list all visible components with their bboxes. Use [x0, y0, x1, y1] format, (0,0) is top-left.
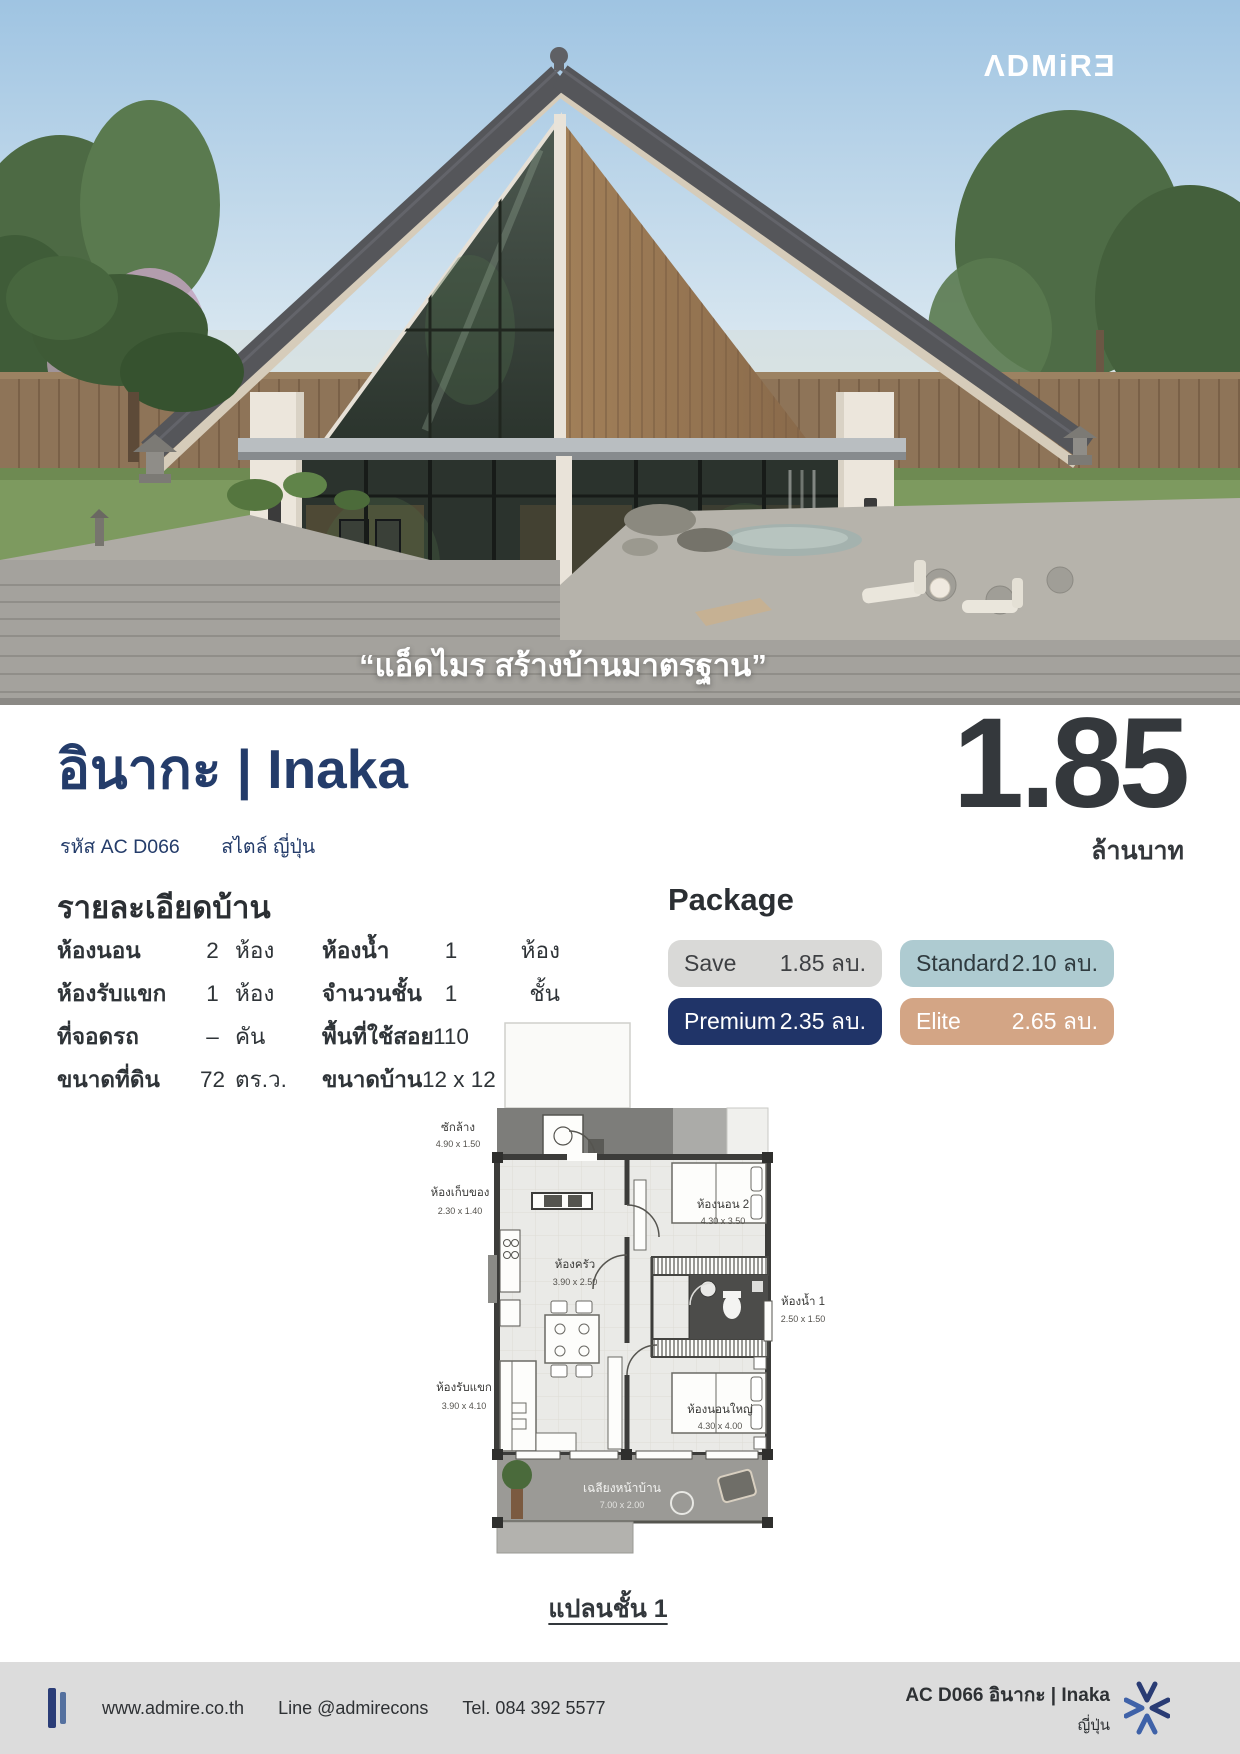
package-tile-value: 1.85 ลบ. — [780, 946, 866, 982]
house-illustration — [0, 0, 1240, 705]
model-title: อินากะ | Inaka — [57, 726, 408, 813]
package-tile-label: Save — [684, 950, 736, 977]
footer-line: Line @admirecons — [278, 1698, 428, 1719]
detail-unit: คัน — [235, 1019, 322, 1062]
floor-plan-drawing: ซักล้าง 4.90 x 1.50 ห้องเก็บของ 2.30 x 1… — [420, 1005, 830, 1575]
room-dims: 2.30 x 1.40 — [438, 1206, 483, 1216]
detail-unit: ห้อง — [480, 933, 560, 976]
brochure-page: ΛDMiRƎ “แอ็ดไมร สร้างบ้านมาตรฐาน” อินากะ… — [0, 0, 1240, 1754]
detail-label: ขนาดที่ดิน — [57, 1062, 190, 1105]
room-label: เฉลียงหน้าบ้าน — [583, 1481, 661, 1495]
model-code: รหัส AC D066 — [60, 836, 180, 858]
footer-tel: Tel. 084 392 5577 — [462, 1698, 605, 1719]
brand-logo: ΛDMiRƎ — [984, 48, 1184, 84]
room-dims: 7.00 x 2.00 — [600, 1500, 645, 1510]
model-style: สไตล์ ญี่ปุ่น — [221, 836, 315, 858]
detail-unit: ห้อง — [235, 976, 322, 1019]
room-label: ห้องนอนใหญ่ — [687, 1403, 753, 1416]
room-dims: 2.50 x 1.50 — [781, 1314, 826, 1324]
price-value: 1.85 — [953, 700, 1186, 828]
room-dims: 3.90 x 2.50 — [553, 1277, 598, 1287]
footer-contact: www.admire.co.th Line @admirecons Tel. 0… — [48, 1662, 606, 1754]
room-dims: 4.90 x 1.50 — [436, 1139, 481, 1149]
footer-model-code: AC D066 อินากะ | Inaka — [905, 1680, 1110, 1710]
detail-label: ห้องรับแขก — [57, 976, 190, 1019]
bed-2 — [672, 1163, 766, 1223]
awning — [238, 438, 906, 452]
room-label: ห้องนอน 2 — [697, 1198, 749, 1211]
detail-label: ห้องนอน — [57, 933, 190, 976]
detail-label: ที่จอดรถ — [57, 1019, 190, 1062]
detail-label: พื้นที่ใช้สอย — [322, 1019, 422, 1062]
room-label: ห้องครัว — [555, 1258, 595, 1271]
hero-photo: ΛDMiRƎ “แอ็ดไมร สร้างบ้านมาตรฐาน” — [0, 0, 1240, 705]
room-label: ซักล้าง — [441, 1121, 475, 1134]
footer-bars-logo-icon — [48, 1687, 68, 1729]
detail-label: ห้องน้ำ — [322, 933, 422, 976]
detail-value: – — [190, 1019, 235, 1062]
floor-plan: ซักล้าง 4.90 x 1.50 ห้องเก็บของ 2.30 x 1… — [420, 1005, 830, 1575]
footer-model-style: ญี่ปุ่น — [905, 1713, 1110, 1737]
package-tile-standard: Standard 2.10 ลบ. — [900, 940, 1114, 987]
room-dims: 3.90 x 4.10 — [442, 1401, 487, 1411]
room-label: ห้องเก็บของ — [431, 1184, 490, 1199]
package-tile-value: 2.10 ลบ. — [1012, 946, 1098, 982]
footer-model: AC D066 อินากะ | Inaka ญี่ปุ่น — [905, 1662, 1170, 1754]
detail-label: จำนวนชั้น — [322, 976, 422, 1019]
detail-value: 1 — [190, 976, 235, 1019]
room-label: ห้องรับแขก — [436, 1381, 492, 1394]
roof-finial — [550, 47, 568, 65]
room-dims: 4.30 x 4.00 — [698, 1421, 743, 1431]
package-tile-save: Save 1.85 ลบ. — [668, 940, 882, 987]
package-heading: Package — [668, 882, 794, 918]
plan-caption: แปลนชั้น 1 — [0, 1589, 1216, 1629]
detail-label: ขนาดบ้าน — [322, 1062, 422, 1105]
detail-value: 72 — [190, 1062, 235, 1105]
package-tile-label: Elite — [916, 1008, 961, 1035]
footer: www.admire.co.th Line @admirecons Tel. 0… — [0, 1662, 1240, 1754]
detail-unit: ห้อง — [235, 933, 322, 976]
details-heading: รายละเอียดบ้าน — [57, 882, 271, 932]
model-meta: รหัส AC D066 สไตล์ ญี่ปุ่น — [60, 831, 351, 862]
detail-value: 2 — [190, 933, 235, 976]
package-tile-value: 2.65 ลบ. — [1012, 1004, 1098, 1040]
package-tile-label: Standard — [916, 950, 1009, 977]
detail-unit: ตร.ว. — [235, 1062, 322, 1105]
photo-tagline: “แอ็ดไมร สร้างบ้านมาตรฐาน” — [0, 640, 1126, 690]
room-label: ห้องน้ำ 1 — [781, 1293, 825, 1308]
price-unit: ล้านบาท — [1091, 831, 1184, 871]
package-tile-elite: Elite 2.65 ลบ. — [900, 998, 1114, 1045]
footer-star-logo-icon — [1124, 1681, 1170, 1735]
room-dims: 4.30 x 3.50 — [701, 1216, 746, 1226]
detail-value: 1 — [422, 933, 480, 976]
footer-website: www.admire.co.th — [102, 1698, 244, 1719]
